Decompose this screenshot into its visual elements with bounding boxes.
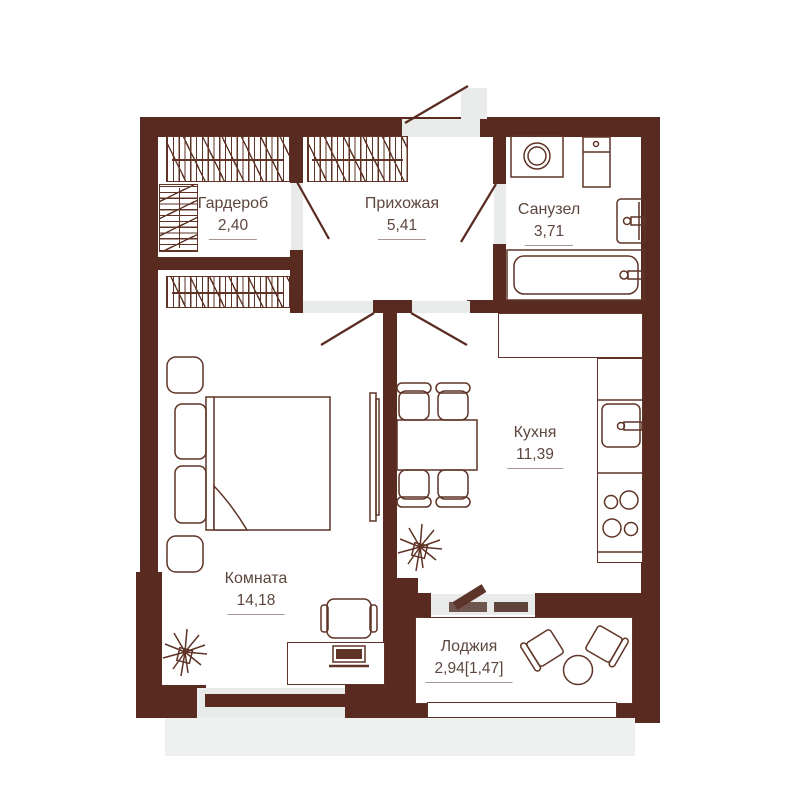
tv [370,393,379,521]
room-name: Гардероб [198,194,268,215]
dining-chair [397,383,431,420]
room-area: 2,94[1,47] [426,658,513,683]
laptop [329,646,369,666]
room-label-bathroom: Санузел 3,71 [518,200,580,246]
kitchen-door-swing [411,313,467,345]
dining-chair [436,383,470,420]
nightstand [167,536,203,572]
wardrobe-door-swing [297,182,329,239]
room-name: Комната [225,569,288,590]
washing-machine [511,136,563,177]
bathtub [507,250,644,300]
entrance-door-swing [405,86,468,123]
bathroom-cabinet [583,137,610,187]
room-name: Санузел [518,200,580,221]
room-name: Лоджия [426,637,513,658]
room-label-room: Комната 14,18 [225,569,288,615]
room-label-wardrobe: Гардероб 2,40 [198,194,268,240]
kitchen-sink [597,400,643,447]
bathroom-sink [617,199,645,243]
loggia-chair [520,627,566,672]
room-label-loggia: Лоджия 2,94[1,47] [426,637,513,683]
dining-chair [397,470,431,507]
desk-chair [321,599,377,638]
room-area: 11,39 [507,444,563,469]
room-label-kitchen: Кухня 11,39 [507,423,563,469]
room-name: Кухня [507,423,563,444]
floor-plan: Гардероб 2,40 Прихожая 5,41 Санузел 3,71… [0,0,800,807]
room-label-hallway: Прихожая 5,41 [365,194,439,240]
dining-chair [436,470,470,507]
loggia-chair [584,623,629,668]
room-area: 14,18 [225,590,288,615]
nightstand [167,357,203,393]
loggia-table [564,656,593,685]
room-area: 3,71 [518,221,580,246]
room-area: 2,40 [198,215,268,240]
room-door-swing [321,313,374,345]
furniture-layer [0,0,800,807]
bathroom-door-swing [461,184,496,242]
dining-table [397,420,477,470]
plant-icon [163,629,207,676]
room-area: 5,41 [365,215,439,240]
room-name: Прихожая [365,194,439,215]
plant-icon [398,524,442,571]
stove [597,473,643,552]
bed [175,397,330,530]
balcony-door [449,588,528,612]
